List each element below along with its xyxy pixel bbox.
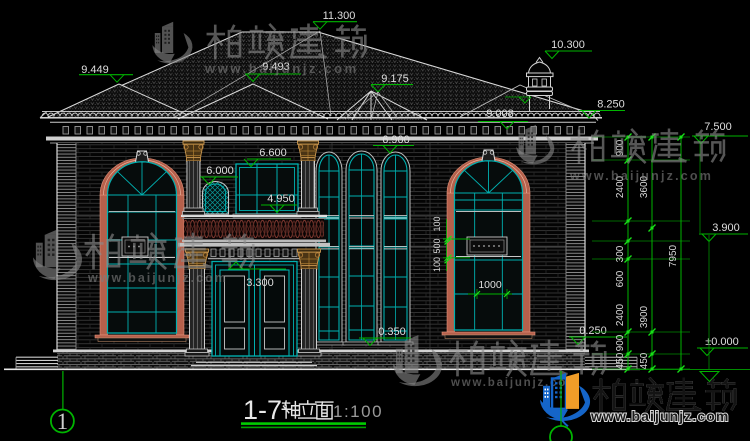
svg-text:100: 100 [432, 216, 442, 231]
svg-text:100: 100 [432, 257, 442, 272]
svg-text:6.600: 6.600 [259, 147, 287, 159]
svg-text:9.175: 9.175 [381, 73, 409, 85]
svg-text:2400: 2400 [615, 303, 626, 326]
svg-text:www.baijunjz.com: www.baijunjz.com [590, 408, 729, 424]
svg-text:www.baijunjz.com: www.baijunjz.com [87, 271, 228, 285]
svg-text:3.900: 3.900 [712, 222, 740, 234]
svg-text:0.250: 0.250 [579, 325, 607, 337]
svg-text:7.500: 7.500 [704, 121, 732, 133]
svg-text:4.950: 4.950 [267, 193, 295, 205]
svg-text:1: 1 [57, 409, 69, 434]
svg-text:450: 450 [639, 352, 650, 369]
svg-text:600: 600 [615, 270, 626, 287]
svg-text:500: 500 [432, 238, 442, 253]
svg-text:7950: 7950 [668, 244, 679, 267]
svg-text:450: 450 [615, 352, 626, 369]
svg-text:3900: 3900 [639, 305, 650, 328]
svg-text:6.000: 6.000 [206, 165, 234, 177]
svg-text:1000: 1000 [478, 279, 502, 291]
svg-text:±0.000: ±0.000 [705, 336, 739, 348]
svg-text:8.250: 8.250 [597, 99, 625, 111]
svg-text:1-7: 1-7 [243, 395, 282, 425]
svg-text:0.350: 0.350 [378, 326, 406, 338]
svg-text:www.baijunjz.com: www.baijunjz.com [204, 61, 359, 76]
svg-text:www.baijunjz.com: www.baijunjz.com [569, 169, 713, 183]
svg-text:1:100: 1:100 [333, 402, 383, 421]
svg-text:3.300: 3.300 [246, 277, 274, 289]
svg-text:6.900: 6.900 [382, 134, 410, 146]
svg-text:900: 900 [615, 334, 626, 351]
svg-text:300: 300 [615, 245, 626, 262]
svg-text:10.300: 10.300 [551, 39, 585, 51]
svg-text:11.300: 11.300 [323, 10, 356, 22]
svg-text:9.008: 9.008 [486, 108, 514, 120]
